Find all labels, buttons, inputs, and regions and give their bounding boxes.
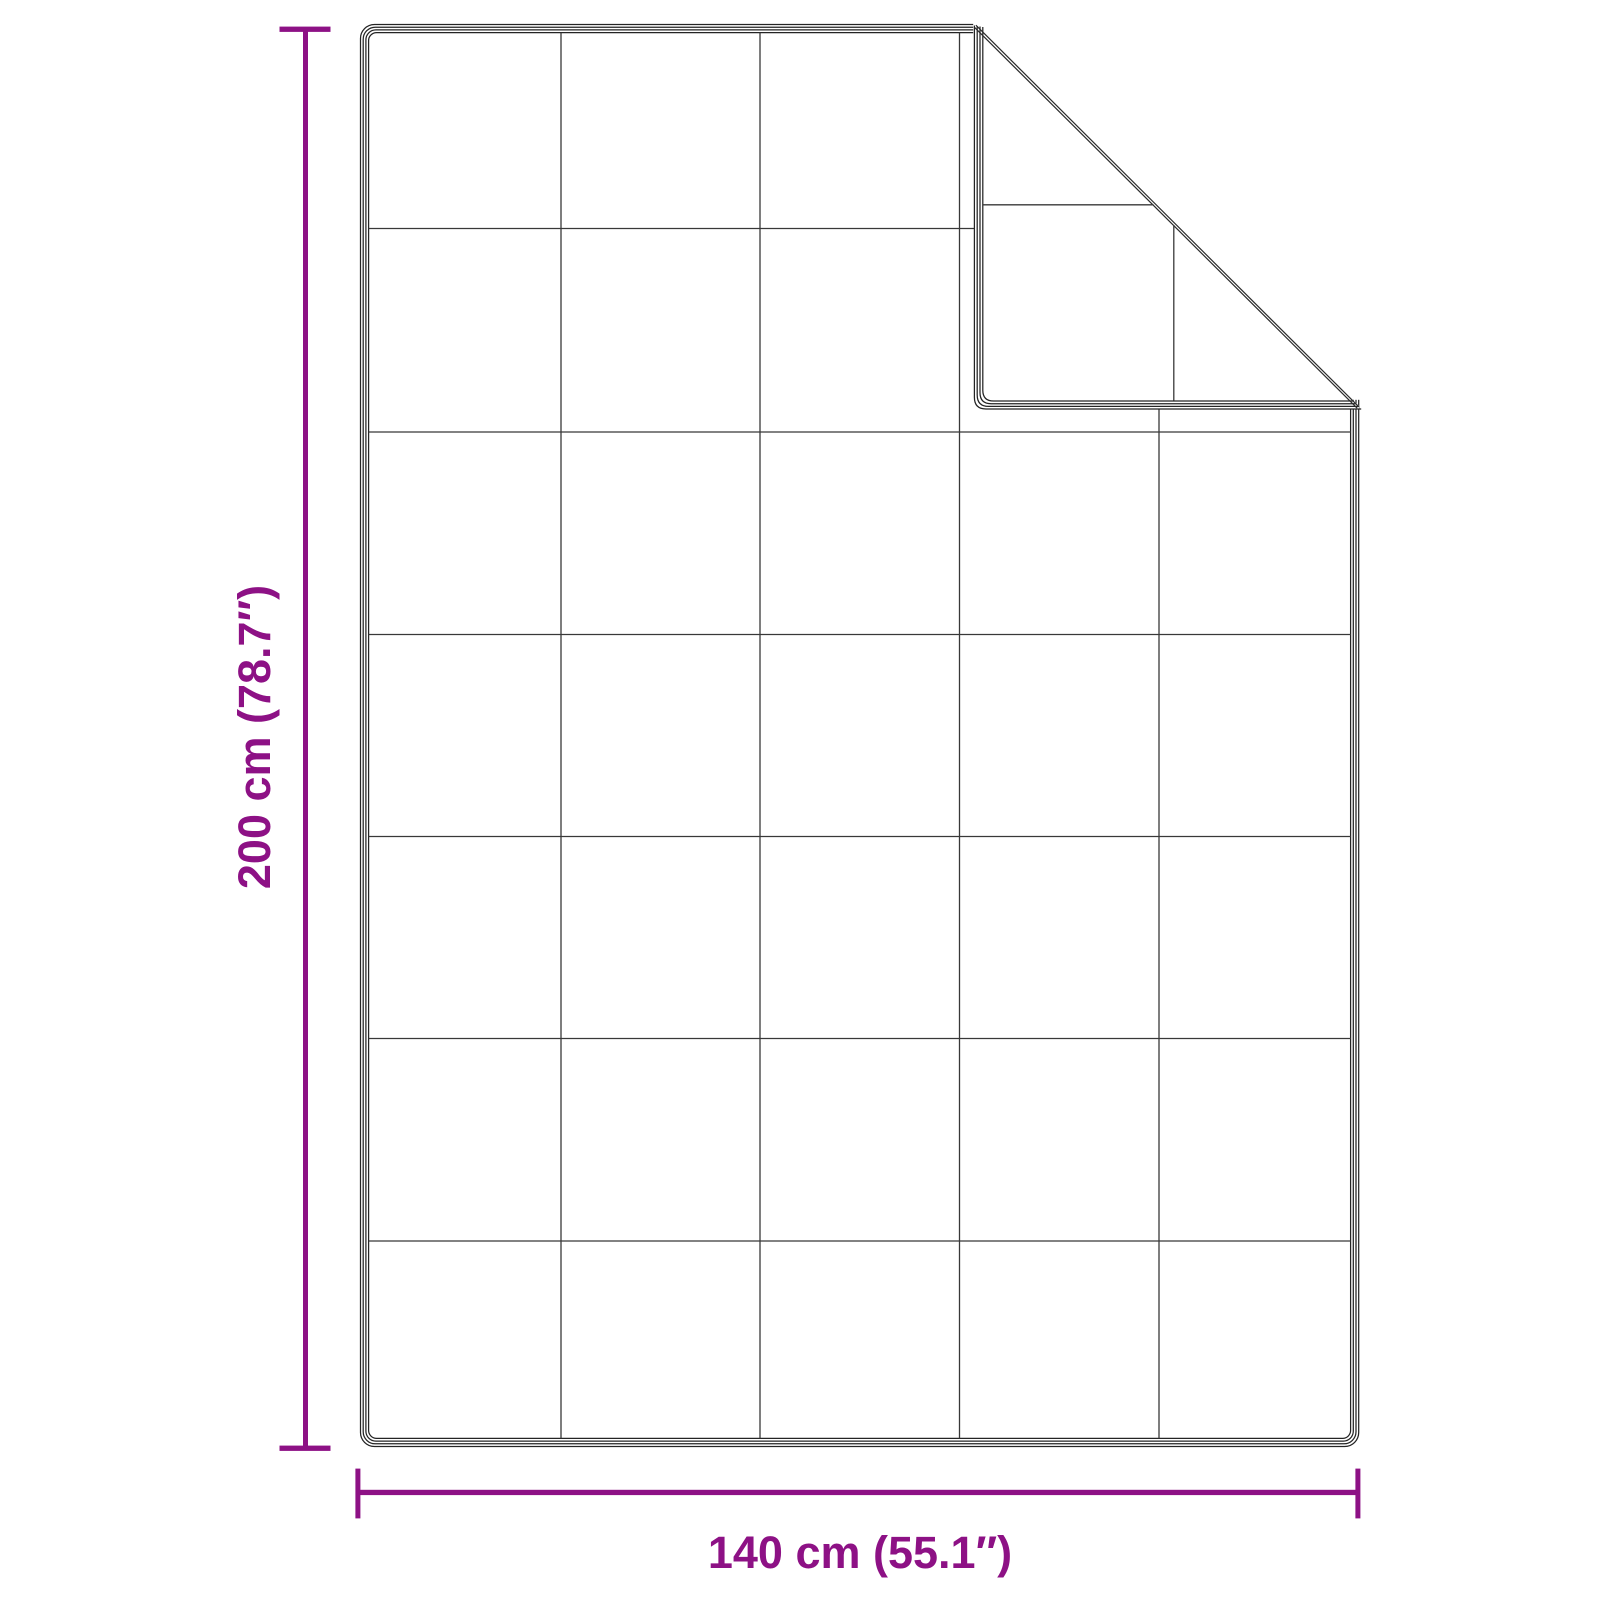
svg-text:140 cm (55.1″): 140 cm (55.1″) [708,1527,1012,1578]
svg-text:200 cm (78.7″): 200 cm (78.7″) [229,585,280,889]
